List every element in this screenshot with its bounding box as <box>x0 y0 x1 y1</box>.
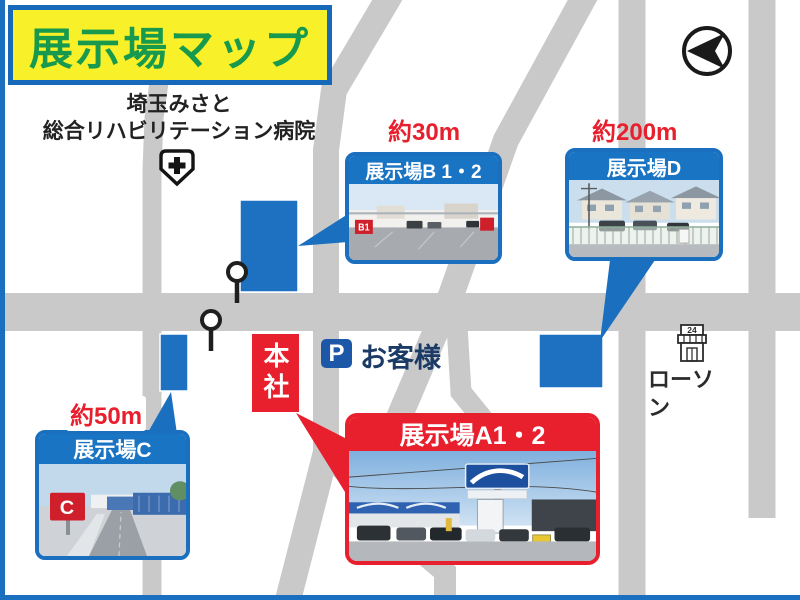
lot-d-marker <box>539 334 603 388</box>
store-name: ローソン <box>648 366 722 421</box>
hospital-icon <box>158 148 196 188</box>
site-b-title: 展示場B 1・2 <box>349 156 498 184</box>
exhibition-map: 展示場マップ 埼玉みさと 総合リハビリテーション病院 約30m 約200m 約5… <box>0 0 800 600</box>
site-d-photo <box>569 180 719 257</box>
map-title: 展示場マップ <box>29 13 311 77</box>
callout-site-c: 展示場C C <box>35 430 190 560</box>
parking-icon: P <box>321 339 352 368</box>
distance-label-d: 約200m <box>592 112 677 147</box>
callout-site-a: 展示場A1・2 <box>345 413 600 565</box>
bottom-border <box>0 595 800 600</box>
headquarters-label: 本社 <box>257 342 294 404</box>
signal-1-head <box>228 263 246 281</box>
headquarters-marker: 本社 <box>252 334 299 412</box>
distance-label-c: 約50m <box>66 396 146 431</box>
hospital-name-line1: 埼玉みさと <box>18 92 340 119</box>
parking-label: お客様 <box>360 336 441 375</box>
lot-b-marker <box>240 200 298 292</box>
compass-icon <box>680 24 734 78</box>
signal-2-head <box>202 311 220 329</box>
callout-site-d: 展示場D <box>565 148 723 261</box>
left-border <box>0 0 5 600</box>
map-title-box: 展示場マップ <box>8 5 332 85</box>
site-a-title: 展示場A1・2 <box>349 417 596 451</box>
distance-label-b: 約30m <box>388 112 460 147</box>
lot-c-marker <box>160 334 188 391</box>
site-c-photo-sign: C <box>60 497 74 519</box>
site-c-photo: C <box>39 464 186 556</box>
hospital-label: 埼玉みさと 総合リハビリテーション病院 <box>18 92 340 146</box>
store-icon: 24 <box>674 324 710 364</box>
hospital-name-line2: 総合リハビリテーション病院 <box>18 119 340 146</box>
callout-site-b: 展示場B 1・2 B1 <box>345 152 502 264</box>
site-a-photo <box>349 451 596 561</box>
site-c-title: 展示場C <box>39 434 186 464</box>
site-d-title: 展示場D <box>569 152 719 180</box>
site-b-photo: B1 <box>349 184 498 260</box>
store-badge: 24 <box>687 325 697 335</box>
site-b-photo-sign: B1 <box>358 222 369 232</box>
